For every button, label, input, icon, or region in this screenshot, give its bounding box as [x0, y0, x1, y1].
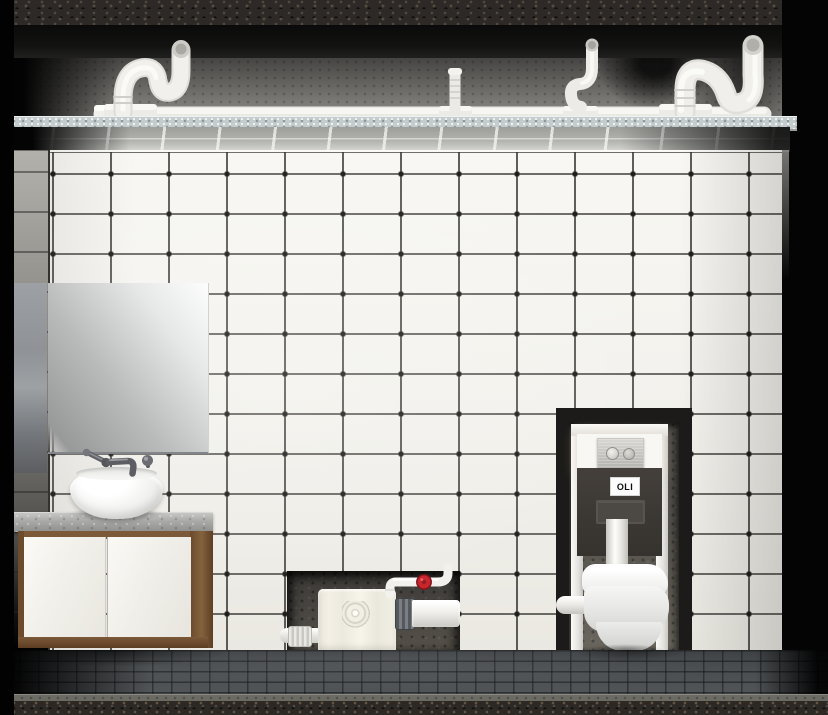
macerator-inlet-coupling: [288, 626, 312, 647]
toilet-floor-shadow: [578, 650, 683, 662]
flush-button-left: [606, 447, 619, 460]
cistern-brand-label: OLI: [610, 477, 640, 496]
toilet-inlet-pipe: [412, 600, 460, 627]
macerator-access-cap: [342, 601, 371, 630]
vanity-door-right: [107, 537, 191, 637]
flush-button-right: [623, 448, 635, 460]
vanity-wood-side-panel: [190, 531, 213, 648]
middle-zigzag-pipe: [571, 39, 599, 108]
aggregate-band: [0, 701, 828, 715]
left-side-wall-panel: [14, 283, 47, 473]
flush-plate: [597, 438, 644, 470]
ceiling-shadow-left: [0, 127, 130, 152]
hose-connector-pipe: [448, 68, 462, 112]
bathroom-render: OLI: [0, 0, 828, 715]
flush-pipe: [606, 519, 628, 569]
right-n-trap-pipe: [675, 35, 763, 113]
mirror: [48, 283, 209, 454]
vanity-door-left: [24, 537, 106, 637]
vanity-wood-base: [18, 637, 208, 648]
vanity-floor-shadow: [10, 650, 225, 666]
toilet-discharge-pipe: [556, 596, 586, 614]
left-void: [0, 0, 14, 715]
floor-shadow-right: [755, 650, 828, 695]
ceiling-shadow-right: [620, 127, 790, 152]
wall-side-edge: [782, 150, 789, 280]
left-s-trap-pipe: [114, 40, 190, 112]
basin-rim: [76, 467, 157, 480]
